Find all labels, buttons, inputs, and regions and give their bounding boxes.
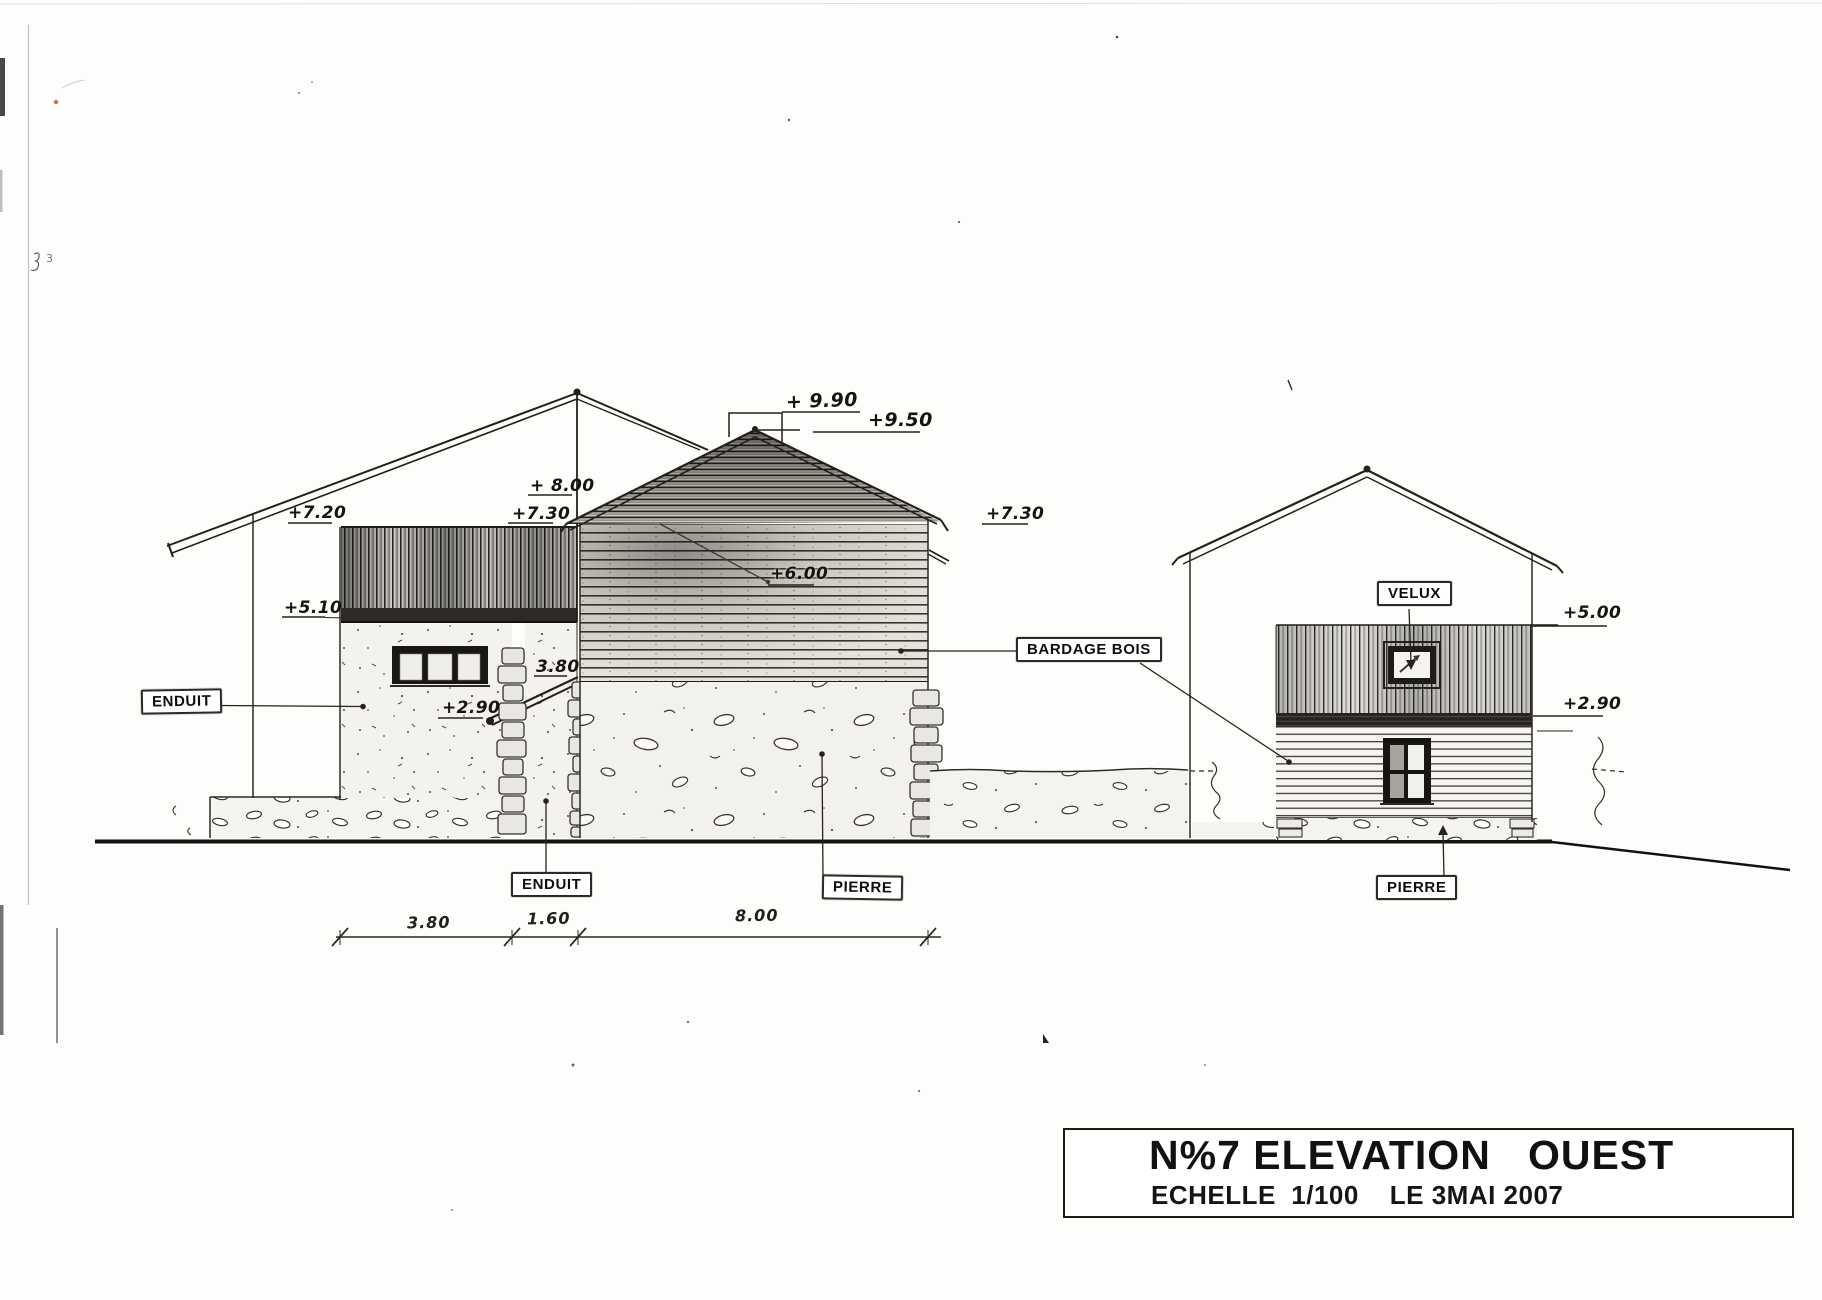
pierre-right-label: PIERRE [1376,875,1457,900]
elevation-mark-awning-top: 3.80 [536,657,580,677]
elevation-mark-center-left-730: +7.30 [512,504,570,524]
title-block: N%7 ELEVATION OUEST ECHELLE 1/100 LE 3MA… [1063,1128,1794,1218]
elevation-mark-right-band-top: +5.00 [1563,603,1621,623]
sheet-subtitle: ECHELLE 1/100 LE 3MAI 2007 [1151,1180,1563,1211]
elevation-mark-left-eave: +7.20 [288,503,346,523]
dimension-seg3: 8.00 [735,906,779,926]
dimension-seg1: 3.80 [407,913,451,933]
elevation-mark-ridge-secondary: +9.50 [868,409,933,431]
enduit-bottom-label: ENDUIT [511,872,592,897]
dimension-seg2: 1.60 [527,909,571,929]
elevation-mark-rear-eave: +6.00 [770,564,828,584]
elevation-mark-right-band-bottom: +2.90 [1563,694,1621,714]
elevation-drawing [0,0,1822,1300]
elevation-mark-center-eave: + 8.00 [530,476,595,496]
sheet-title: N%7 ELEVATION OUEST [1149,1132,1674,1179]
margin-squiggle [31,253,39,271]
margin-mark: 3 [46,252,53,265]
elevation-mark-ridge-cap: + 9.90 [786,389,859,413]
bardage-bois-label: BARDAGE BOIS [1016,637,1162,662]
elevation-mark-center-right-730: +7.30 [986,504,1044,524]
elevation-mark-awning-base: +2.90 [442,698,500,718]
ground-line [95,842,1790,871]
scanned-elevation-sheet: +7.20 + 8.00 +7.30 +5.10 + 9.90 +9.50 +6… [0,0,1822,1300]
elevation-mark-left-band-bottom: +5.10 [284,598,342,618]
right-building [1172,466,1605,841]
velux-label: VELUX [1377,581,1452,606]
pierre-center-label: PIERRE [822,874,904,900]
enduit-left-label: ENDUIT [141,688,223,714]
center-building [561,413,949,838]
